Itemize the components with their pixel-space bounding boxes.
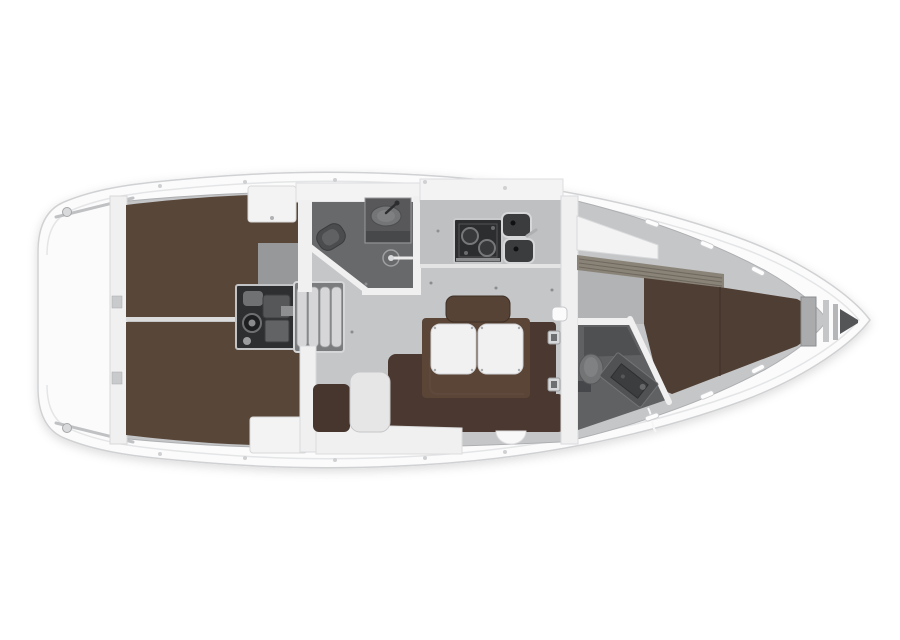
floor-fitting-1 — [365, 283, 368, 286]
floor-fitting-4 — [551, 289, 554, 292]
table-leaf-right — [478, 324, 523, 374]
berth-centerline — [126, 317, 238, 321]
step-4 — [332, 287, 342, 347]
aft-head-bottom-wall — [362, 288, 420, 295]
engine-part-manifold — [265, 320, 289, 342]
door-latch-1 — [548, 331, 560, 344]
toilet-forward-seat — [584, 357, 598, 377]
chart-table — [350, 372, 390, 432]
engine-part-box — [281, 306, 293, 316]
cabin-door-handle — [552, 307, 567, 321]
stove-knob-1 — [464, 251, 468, 255]
floor-fitting-5 — [351, 331, 354, 334]
berth-end-frame — [801, 297, 816, 346]
forward-head-top-wall — [578, 318, 633, 325]
transom-bulkhead — [110, 196, 127, 444]
burner-1 — [462, 228, 478, 244]
floor-plan-canvas — [0, 0, 900, 640]
faucet-aft-head — [395, 201, 400, 206]
stove-knob-2 — [491, 226, 495, 230]
engine-part-pulley-hub — [249, 320, 256, 327]
aft-locker-starboard — [250, 417, 307, 453]
deck-hatch-starboard — [63, 424, 72, 433]
counter-fitting — [437, 230, 440, 233]
anchor-divider-2 — [833, 304, 838, 340]
sink-basin-2 — [504, 239, 534, 263]
engine-part-filter — [243, 291, 263, 306]
vanity-aft-front — [366, 231, 410, 242]
stove-handle — [456, 258, 500, 262]
anchor-divider-1 — [823, 300, 829, 342]
step-1 — [297, 287, 307, 347]
stove-body — [454, 219, 502, 263]
shower-knob — [388, 255, 394, 261]
sink-drain-1 — [511, 221, 516, 226]
door-latch-2 — [548, 378, 560, 391]
floor-fitting-3 — [495, 287, 498, 290]
companionway-steps — [294, 282, 344, 352]
step-2 — [309, 287, 319, 347]
engine-compartment — [236, 285, 296, 349]
floor-fitting-2 — [430, 282, 433, 285]
sink-drain-2 — [514, 247, 519, 252]
vanity-aft — [365, 198, 411, 243]
sofa-backrest — [446, 296, 510, 322]
bulkhead-fitting-1 — [112, 296, 122, 308]
burner-2 — [479, 240, 495, 256]
galley-top-lockers — [420, 179, 563, 202]
yacht-floor-plan — [0, 0, 900, 640]
locker-knob-port — [270, 216, 274, 220]
sink-basin-1 — [502, 213, 531, 237]
aft-head-right-wall — [413, 196, 421, 295]
deck-hatch-port — [63, 208, 72, 217]
bulkhead-fitting-2 — [112, 372, 122, 384]
step-3 — [320, 287, 330, 347]
galley — [420, 179, 563, 268]
engine-part-cap — [243, 337, 251, 345]
table-leaf-left — [431, 324, 476, 374]
galley-counter-edge — [420, 264, 563, 268]
stove — [454, 219, 502, 263]
nav-seat — [313, 384, 350, 432]
